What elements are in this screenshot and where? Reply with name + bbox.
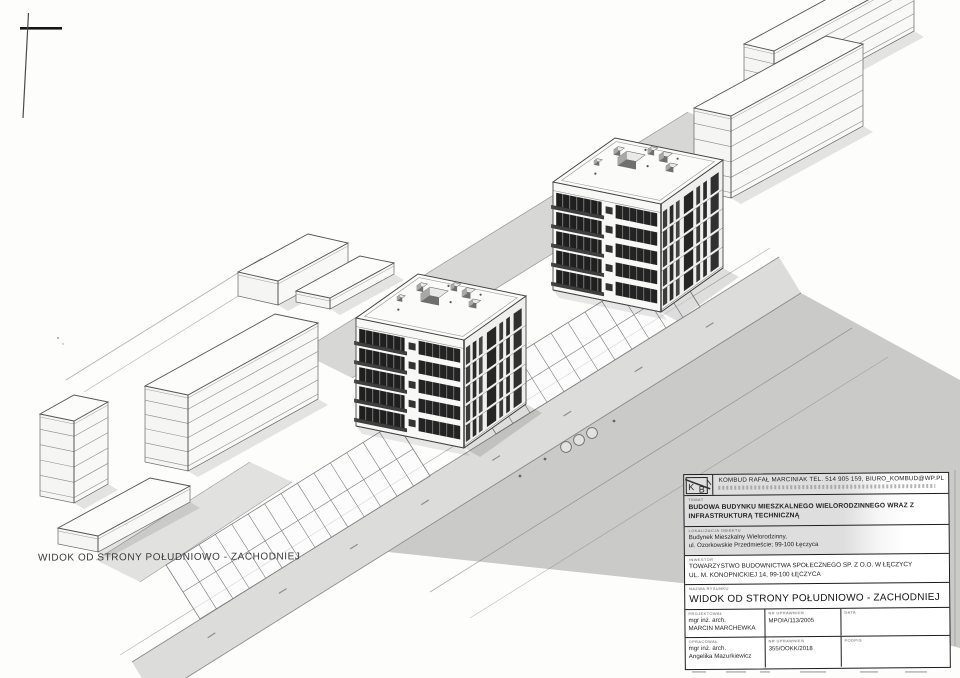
illegible-address-line [719,484,936,490]
title-block: K B KOMBUD RAFAŁ MARCINIAK TEL. 514 905 … [683,472,951,670]
drawing-name-label: NAZWA RYSUNKU [689,584,945,591]
signature-label: PODPIS [845,637,947,643]
project-name-line2: INFRASTRUKTURĄ TECHNICZNĄ [688,510,944,521]
svg-text:K: K [688,482,694,492]
license1-label: NR UPRAWNIEŃ [768,610,837,616]
kombud-logo: K B [684,475,714,495]
view-caption: WIDOK OD STRONY POŁUDNIOWO - ZACHODNIEJ [38,551,300,563]
drawing-title: WIDOK OD STRONY POŁUDNIOWO - ZACHODNIEJ [689,592,945,605]
investor-line2: UL. M. KONOPNICKIEJ 14, 99-100 ŁĘCZYCA [689,570,945,581]
kombud-logo-icon: K B [685,475,711,494]
object-name-line2: ul. Ozorkowskie Przedmieście; 99-100 Łęc… [689,540,945,550]
license1-number: MPOIA/113/2005 [768,618,837,625]
author-label: OPRACOWAŁ [689,638,762,644]
title-block-contact: KOMBUD RAFAŁ MARCINIAK TEL. 514 905 159,… [719,475,945,484]
designer-name: MARCIN MARCHEWKA [688,625,761,634]
license2-label: NR UPRAWNIEŃ [769,638,838,644]
license2-number: 355/OOKK/2018 [769,646,838,653]
svg-text:B: B [699,484,705,494]
scanned-drawing-sheet: WIDOK OD STRONY POŁUDNIOWO - ZACHODNIEJ … [0,0,960,678]
date-label: DATA [844,609,946,615]
designer-label: PROJEKTOWAŁ [688,610,761,616]
author-name: Angelika Mazurkiewicz [689,653,762,662]
